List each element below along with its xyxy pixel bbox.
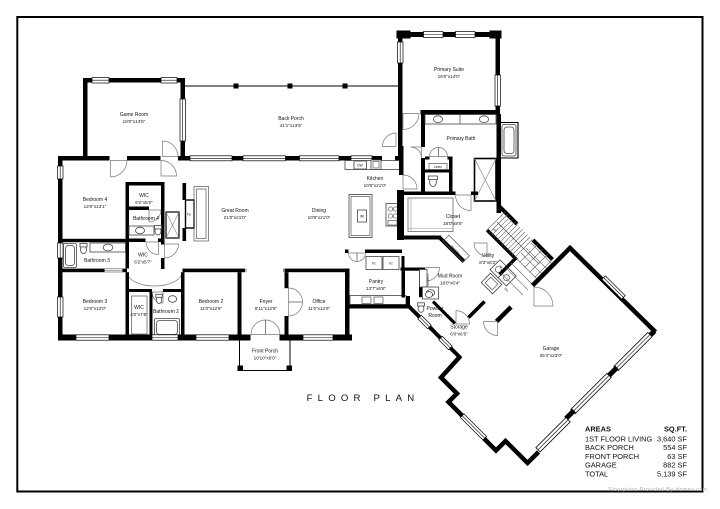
svg-text:Foyer: Foyer xyxy=(260,299,273,305)
svg-text:16'0"x14'0": 16'0"x14'0" xyxy=(438,74,461,79)
svg-text:GARAGE: GARAGE xyxy=(585,461,617,470)
svg-text:10'8"x21'0": 10'8"x21'0" xyxy=(308,215,331,220)
svg-text:Drawers: Drawers xyxy=(426,274,430,286)
svg-text:Bedroom 2: Bedroom 2 xyxy=(199,299,224,305)
svg-text:41'1"x13'6": 41'1"x13'6" xyxy=(280,123,303,128)
svg-text:Kitchen: Kitchen xyxy=(367,176,384,182)
svg-text:6'2"x5'0": 6'2"x5'0" xyxy=(135,200,153,205)
svg-text:WI: WI xyxy=(360,215,364,219)
svg-text:10'10"x6'0": 10'10"x6'0" xyxy=(254,356,277,361)
svg-text:13'7"x6'8": 13'7"x6'8" xyxy=(366,286,386,291)
svg-text:Front Porch: Front Porch xyxy=(252,349,278,355)
svg-text:63 SF: 63 SF xyxy=(667,452,687,461)
svg-text:10'6"x21'0": 10'6"x21'0" xyxy=(364,183,387,188)
svg-text:Bathroom 4: Bathroom 4 xyxy=(133,216,159,222)
svg-text:1ST FLOOR LIVING: 1ST FLOOR LIVING xyxy=(585,434,652,443)
svg-text:8'3"x8'2": 8'3"x8'2" xyxy=(479,260,497,265)
svg-text:Bedroom 3: Bedroom 3 xyxy=(83,299,108,305)
svg-text:35'4"x23'0": 35'4"x23'0" xyxy=(540,353,563,358)
svg-text:Office: Office xyxy=(313,299,326,305)
svg-text:11'0"x12'6": 11'0"x12'6" xyxy=(308,306,331,311)
svg-text:Fz: Fz xyxy=(372,262,376,266)
svg-text:Pantry: Pantry xyxy=(369,279,384,285)
svg-text:12'0"x13'1": 12'0"x13'1" xyxy=(84,204,107,209)
svg-text:Mud Room: Mud Room xyxy=(438,274,462,280)
svg-text:Bathroom 3: Bathroom 3 xyxy=(84,258,110,264)
svg-text:18'0"x14'6": 18'0"x14'6" xyxy=(123,119,146,124)
svg-text:18'0"x6'4": 18'0"x6'4" xyxy=(440,281,460,286)
svg-text:Garage: Garage xyxy=(543,346,560,352)
svg-text:18'0"x8'5": 18'0"x8'5" xyxy=(443,221,463,226)
svg-text:554 SF: 554 SF xyxy=(663,443,687,452)
svg-text:FRONT PORCH: FRONT PORCH xyxy=(585,452,639,461)
svg-text:Fz: Fz xyxy=(389,262,393,266)
svg-text:Game Room: Game Room xyxy=(120,112,148,118)
svg-text:11'0"x12'6": 11'0"x12'6" xyxy=(200,306,223,311)
svg-text:6'0"x6'5": 6'0"x6'5" xyxy=(450,332,468,337)
svg-text:3,640 SF: 3,640 SF xyxy=(657,434,687,443)
svg-text:Room: Room xyxy=(428,313,441,319)
svg-text:Bathroom 2: Bathroom 2 xyxy=(153,309,179,315)
svg-text:WIC: WIC xyxy=(138,253,148,259)
svg-text:882 SF: 882 SF xyxy=(663,461,687,470)
svg-text:WIC: WIC xyxy=(134,305,144,311)
svg-text:FLOOR PLAN: FLOOR PLAN xyxy=(307,393,420,404)
svg-text:TOTAL: TOTAL xyxy=(585,469,608,478)
svg-text:SQ.FT.: SQ.FT. xyxy=(664,425,687,434)
svg-text:BACK PORCH: BACK PORCH xyxy=(585,443,634,452)
svg-text:AREAS: AREAS xyxy=(585,425,611,434)
svg-text:Storage: Storage xyxy=(450,325,468,331)
svg-text:Great Room: Great Room xyxy=(221,208,248,214)
svg-text:21'0"x21'0": 21'0"x21'0" xyxy=(224,215,247,220)
svg-text:Utility: Utility xyxy=(482,253,495,259)
svg-text:Primary Bath: Primary Bath xyxy=(447,136,476,142)
svg-text:Back Porch: Back Porch xyxy=(278,116,304,122)
svg-text:6'2"x5'7": 6'2"x5'7" xyxy=(134,260,152,265)
svg-text:Linen: Linen xyxy=(434,165,442,169)
svg-text:DW: DW xyxy=(357,164,363,168)
svg-text:Bedroom 4: Bedroom 4 xyxy=(83,197,108,203)
svg-text:4'0"x7'8": 4'0"x7'8" xyxy=(130,312,148,317)
svg-text:Primary Suite: Primary Suite xyxy=(434,67,464,73)
svg-text:WIC: WIC xyxy=(139,193,149,199)
svg-text:Closet: Closet xyxy=(446,214,461,220)
svg-text:8'11"x12'6": 8'11"x12'6" xyxy=(255,306,278,311)
svg-text:Dining: Dining xyxy=(312,208,326,214)
svg-text:Fp: Fp xyxy=(187,213,191,217)
svg-text:12'0"x13'0": 12'0"x13'0" xyxy=(84,306,107,311)
svg-text:Floorplans Provided By Homes.c: Floorplans Provided By Homes.com xyxy=(609,487,708,493)
svg-text:5,139 SF: 5,139 SF xyxy=(657,469,687,478)
